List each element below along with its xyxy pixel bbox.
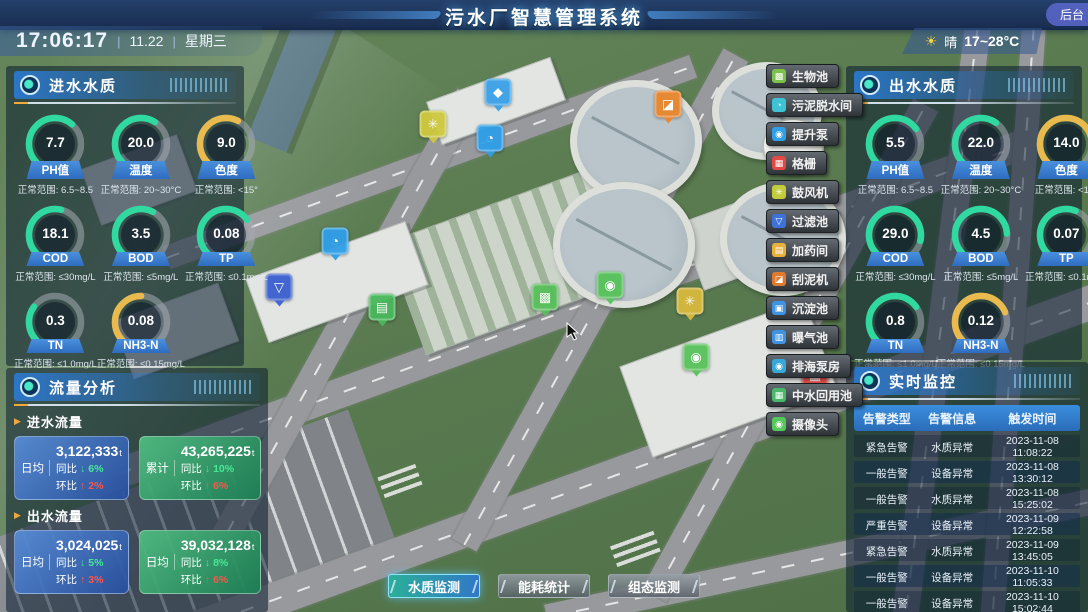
- gauge: 18.1 COD 正常范围: ≤30mg/L: [14, 202, 97, 283]
- header-dots-decor: [170, 78, 230, 92]
- realtime-monitor-panel: 实时监控 告警类型 告警信息 触发时间 紧急告警 水质异常 2023-11-08…: [846, 362, 1088, 612]
- alarm-row: 紧急告警 水质异常 2023-11-08 11:08:22: [854, 435, 1080, 457]
- facility-button[interactable]: ◪ 刮泥机: [766, 267, 839, 291]
- alarm-row: 紧急告警 水质异常 2023-11-09 13:45:05: [854, 539, 1080, 561]
- mud-scraper-marker[interactable]: ◪: [655, 91, 682, 118]
- bio-pool-icon: ▩: [772, 69, 786, 83]
- gauge-label: NH3-N: [952, 339, 1010, 353]
- gauge-value: 14.0: [1033, 135, 1088, 150]
- alarm-row: 一般告警 设备异常 2023-11-08 13:30:12: [854, 461, 1080, 483]
- gauge-normal-range: 正常范围: ≤30mg/L: [15, 269, 95, 283]
- gauge-value: 0.3: [22, 313, 88, 328]
- yoy-percent: 8%: [213, 557, 228, 569]
- alarm-type: 一般告警: [854, 596, 919, 611]
- gauge: 5.5 PH值 正常范围: 6.5~8.5: [854, 111, 937, 196]
- up-arrow-icon: ↑: [80, 574, 85, 586]
- alarm-table-header: 告警类型 告警信息 触发时间: [854, 405, 1080, 431]
- marker-pointer: [540, 311, 550, 317]
- sun-icon: ☀: [925, 33, 938, 50]
- camera-marker[interactable]: ◉: [683, 344, 710, 371]
- gauge-value: 0.08: [193, 226, 259, 241]
- inflow-section-title: ▶ 进水流量: [14, 412, 260, 431]
- sludge-dewatering-icon: ◔: [772, 98, 786, 112]
- flow-card: 日均 3,122,333t 同比↓6% 环比↑2%: [14, 436, 129, 500]
- facility-label: 曝气池: [792, 329, 828, 346]
- time-text: 17:06:17: [16, 29, 108, 53]
- clarifier-tank: [553, 182, 695, 308]
- filter-pool-marker[interactable]: ▽: [266, 274, 293, 301]
- alarm-time: 2023-11-10 11:05:33: [985, 565, 1080, 589]
- dashboard: ✳ ◔ ◆ ◪ ◔ ▽ ▤ ▩: [0, 0, 1088, 612]
- marker-glyph: ◔: [331, 234, 339, 249]
- bottom-tab-bar: 水质监测 能耗统计 组态监测: [388, 574, 700, 598]
- gauge-label: 色度: [197, 161, 255, 179]
- aeration-tank-icon: ▥: [772, 330, 786, 344]
- header-dots-decor: [1014, 374, 1074, 388]
- marker-pointer: [663, 118, 673, 124]
- gauge-label: TP: [197, 252, 255, 266]
- gauge-normal-range: 正常范围: ≤0.1mg/L: [1025, 269, 1088, 283]
- panel-header: 实时监控: [854, 367, 1080, 395]
- panel-header: 进水水质: [14, 71, 236, 99]
- lift-pump-marker[interactable]: ◆: [485, 79, 512, 106]
- alarm-time: 2023-11-09 12:22:58: [985, 513, 1080, 537]
- alarm-row: 严重告警 设备异常 2023-11-09 12:22:58: [854, 513, 1080, 535]
- gauge-label: 温度: [112, 161, 170, 179]
- facility-label: 刮泥机: [792, 271, 828, 288]
- blower-marker[interactable]: ✳: [420, 111, 447, 138]
- flow-unit: t: [252, 448, 255, 458]
- gauge-value: 4.5: [948, 226, 1014, 241]
- inflow-cards: 日均 3,122,333t 同比↓6% 环比↑2% 累计 43,265,225t…: [14, 436, 260, 500]
- facility-label: 格栅: [792, 155, 816, 172]
- gauge: 20.0 温度 正常范围: 20~30°C: [97, 111, 185, 196]
- flow-card: 日均 3,024,025t 同比↓5% 环比↑3%: [14, 530, 129, 594]
- gauge: 0.3 TN 正常范围: ≤1.0mg/L: [14, 289, 97, 370]
- alarm-info: 水质异常: [919, 492, 984, 507]
- reclaimed-water-marker[interactable]: ▤: [369, 294, 396, 321]
- alarm-time: 2023-11-10 15:02:44: [985, 591, 1080, 612]
- gauge-value: 9.0: [193, 135, 259, 150]
- marker-glyph: ▩: [539, 289, 551, 305]
- gauge-value: 0.8: [862, 313, 928, 328]
- alarm-type: 一般告警: [854, 570, 919, 585]
- inlet-quality-panel: 进水水质 7.7 PH值 正常范围: 6.5~8.5: [6, 66, 244, 366]
- panel-header-icon: [20, 75, 40, 95]
- gauge-normal-range: 正常范围: ≤30mg/L: [855, 269, 935, 283]
- bottom-tab[interactable]: 水质监测: [388, 574, 480, 598]
- header-underline: [14, 102, 236, 104]
- lift-pump-marker[interactable]: ◔: [322, 228, 349, 255]
- mud-scraper-icon: ◪: [772, 272, 786, 286]
- gauge-normal-range: 正常范围: <15°: [1035, 182, 1088, 196]
- alarm-table-body: 紧急告警 水质异常 2023-11-08 11:08:22 一般告警 设备异常 …: [854, 435, 1080, 612]
- alarm-time: 2023-11-08 11:08:22: [985, 435, 1080, 459]
- marker-glyph: ▽: [274, 279, 284, 295]
- marker-glyph: ✳: [685, 293, 696, 309]
- lift-pump-icon: ◉: [772, 127, 786, 141]
- alarm-type: 严重告警: [854, 518, 919, 533]
- outflow-cards: 日均 3,024,025t 同比↓5% 环比↑3% 日均 39,032,128t…: [14, 530, 260, 594]
- gauge-value: 0.12: [948, 313, 1014, 328]
- facility-button[interactable]: ◉ 提升泵: [766, 122, 839, 146]
- alarm-info: 设备异常: [919, 570, 984, 585]
- marker-glyph: ◉: [690, 349, 701, 365]
- alarm-info: 设备异常: [919, 466, 984, 481]
- flow-value: 3,024,025: [56, 537, 118, 553]
- bottom-tab[interactable]: 能耗统计: [498, 574, 590, 598]
- flow-card-tag: 累计: [146, 460, 175, 476]
- gauge: 7.7 PH值 正常范围: 6.5~8.5: [14, 111, 97, 196]
- gauge-value: 3.5: [108, 226, 174, 241]
- filter-pool-icon: ▽: [772, 214, 786, 228]
- header-underline: [14, 404, 260, 406]
- alarm-type: 一般告警: [854, 492, 919, 507]
- weather-condition: 晴: [944, 32, 957, 51]
- marker-glyph: ✳: [428, 116, 439, 132]
- gauge-value: 18.1: [22, 226, 88, 241]
- marker-pointer: [485, 152, 495, 158]
- gauge-label: 色度: [1037, 161, 1088, 179]
- facility-label: 中水回用池: [792, 387, 852, 404]
- flow-card-tag: 日均: [21, 554, 50, 570]
- bio-pool-marker[interactable]: ▩: [532, 284, 559, 311]
- down-arrow-icon: ↓: [205, 463, 210, 475]
- up-arrow-icon: ↑: [205, 574, 210, 586]
- blower-icon: ✳: [772, 185, 786, 199]
- alarm-time: 2023-11-08 15:25:02: [985, 487, 1080, 511]
- section-arrow-icon: ▶: [14, 510, 21, 521]
- marker-pointer: [377, 321, 387, 327]
- gauge-normal-range: 正常范围: 20~30°C: [101, 182, 182, 196]
- gauge: 0.12 NH3-N 正常范围: ≤0.15mg/L: [937, 289, 1025, 370]
- flow-card: 日均 39,032,128t 同比↓8% 环比↑6%: [139, 530, 262, 594]
- gauge: 0.08 TP 正常范围: ≤0.1mg/L: [185, 202, 268, 283]
- flow-card: 累计 43,265,225t 同比↓10% 环比↑6%: [139, 436, 262, 500]
- gauge: 9.0 色度 正常范围: <15°: [185, 111, 268, 196]
- facility-label: 沉淀池: [792, 300, 828, 317]
- alarm-row: 一般告警 设备异常 2023-11-10 15:02:44: [854, 591, 1080, 612]
- header-underline: [854, 102, 1074, 104]
- alarm-row: 一般告警 水质异常 2023-11-08 15:25:02: [854, 487, 1080, 509]
- facility-button[interactable]: ◉ 排海泵房: [766, 354, 851, 378]
- blower-marker[interactable]: ✳: [677, 288, 704, 315]
- gauge-label: TP: [1037, 252, 1088, 266]
- gauge: 0.8 TN 正常范围: ≤1.0mg/L: [854, 289, 937, 370]
- outlet-gauge-grid: 5.5 PH值 正常范围: 6.5~8.5 22.0 温度 正常范围: 2: [854, 109, 1074, 370]
- gauge: 0.07 TP 正常范围: ≤0.1mg/L: [1025, 202, 1088, 283]
- gauge-value: 20.0: [108, 135, 174, 150]
- gauge-normal-range: 正常范围: ≤5mg/L: [103, 269, 178, 283]
- gauge-value: 22.0: [948, 135, 1014, 150]
- flow-unit: t: [119, 448, 122, 458]
- facility-label: 污泥脱水间: [792, 97, 852, 114]
- gauge-normal-range: 正常范围: 6.5~8.5: [858, 182, 933, 196]
- down-arrow-icon: ↓: [80, 463, 85, 475]
- crosswalk: [377, 464, 422, 498]
- gauge-label: TN: [866, 339, 924, 353]
- flow-analysis-panel: 流量分析 ▶ 进水流量 日均 3,122,333t 同比↓6% 环比↑2% 累计: [6, 368, 268, 612]
- marker-pointer: [493, 106, 503, 112]
- yoy-percent: 10%: [213, 463, 234, 475]
- marker-glyph: ▤: [376, 299, 388, 315]
- gauge: 3.5 BOD 正常范围: ≤5mg/L: [97, 202, 185, 283]
- down-arrow-icon: ↓: [80, 557, 85, 569]
- alarm-info: 设备异常: [919, 596, 984, 611]
- crosswalk: [609, 529, 660, 567]
- header-underline: [854, 398, 1080, 400]
- temperature-range: 17~28°C: [964, 33, 1019, 49]
- gauge-label: BOD: [952, 252, 1010, 266]
- alarm-row: 一般告警 设备异常 2023-11-10 11:05:33: [854, 565, 1080, 587]
- clock-widget: 17:06:17 | 11.22 | 星期三: [0, 26, 262, 56]
- flow-value: 39,032,128: [181, 537, 251, 553]
- facility-label: 鼓风机: [792, 184, 828, 201]
- flow-unit: t: [252, 542, 255, 552]
- panel-title: 进水水质: [49, 75, 117, 96]
- bar-screen-icon: ▦: [772, 156, 786, 170]
- lift-pump-marker[interactable]: ◔: [477, 125, 504, 152]
- gauge-label: BOD: [112, 252, 170, 266]
- gauge-label: PH值: [866, 161, 924, 179]
- marker-pointer: [691, 371, 701, 377]
- flow-card-tag: 日均: [146, 554, 175, 570]
- section-arrow-icon: ▶: [14, 416, 21, 427]
- alarm-type: 一般告警: [854, 466, 919, 481]
- gauge-normal-range: 正常范围: ≤0.1mg/L: [185, 269, 268, 283]
- gauge-normal-range: 正常范围: ≤5mg/L: [943, 269, 1018, 283]
- dosing-room-icon: ▤: [772, 243, 786, 257]
- mom-percent: 6%: [213, 574, 228, 586]
- gauge: 14.0 色度 正常范围: <15°: [1025, 111, 1088, 196]
- marker-glyph: ◪: [662, 96, 674, 112]
- gauge-label: NH3-N: [112, 339, 170, 353]
- sea-pump-house-icon: ◉: [772, 359, 786, 373]
- gauge-value: 29.0: [862, 226, 928, 241]
- flow-value: 43,265,225: [181, 443, 251, 459]
- facility-button[interactable]: ◔ 污泥脱水间: [766, 93, 863, 117]
- inlet-gauge-grid: 7.7 PH值 正常范围: 6.5~8.5 20.0 温度 正常范围: 2: [14, 109, 236, 370]
- alarm-info: 水质异常: [919, 440, 984, 455]
- facility-button[interactable]: ✳ 鼓风机: [766, 180, 839, 204]
- weekday-text: 星期三: [185, 31, 227, 51]
- gauge-normal-range: 正常范围: 6.5~8.5: [18, 182, 93, 196]
- facility-button[interactable]: ▤ 加药间: [766, 238, 839, 262]
- facility-label: 提升泵: [792, 126, 828, 143]
- marker-glyph: ◆: [493, 84, 503, 100]
- gauge: 22.0 温度 正常范围: 20~30°C: [937, 111, 1025, 196]
- facility-label: 摄像头: [792, 416, 828, 433]
- marker-pointer: [428, 138, 438, 144]
- gauge-value: 5.5: [862, 135, 928, 150]
- alarm-type: 紧急告警: [854, 544, 919, 559]
- gauge-value: 7.7: [22, 135, 88, 150]
- facility-label: 加药间: [792, 242, 828, 259]
- yoy-percent: 5%: [88, 557, 103, 569]
- panel-title: 出水水质: [889, 75, 957, 96]
- alarm-info: 设备异常: [919, 518, 984, 533]
- facility-button[interactable]: ▩ 生物池: [766, 64, 839, 88]
- facility-label: 生物池: [792, 68, 828, 85]
- panel-header-icon: [20, 377, 40, 397]
- facility-label: 过滤池: [792, 213, 828, 230]
- marker-pointer: [330, 255, 340, 261]
- gauge-value: 0.07: [1033, 226, 1088, 241]
- header-dots-decor: [194, 380, 254, 394]
- gauge-label: COD: [26, 252, 84, 266]
- up-arrow-icon: ↑: [205, 480, 210, 492]
- outflow-section-title: ▶ 出水流量: [14, 506, 260, 525]
- header-dots-decor: [1008, 78, 1068, 92]
- flow-unit: t: [119, 542, 122, 552]
- alarm-time: 2023-11-08 13:30:12: [985, 461, 1080, 485]
- facility-button-list: ▩ 生物池 ◔ 污泥脱水间 ◉ 提升泵 ▦ 格栅 ✳ 鼓风机 ▽ 过滤池 ▤ 加…: [766, 64, 863, 436]
- gauge-value: 0.08: [108, 313, 174, 328]
- outlet-quality-panel: 出水水质 5.5 PH值 正常范围: 6.5~8.5: [846, 66, 1082, 360]
- gauge-label: COD: [866, 252, 924, 266]
- marker-glyph: ◔: [486, 131, 494, 146]
- gauge-label: 温度: [952, 161, 1010, 179]
- gauge-normal-range: 正常范围: 20~30°C: [941, 182, 1022, 196]
- marker-pointer: [605, 299, 615, 305]
- alarm-type: 紧急告警: [854, 440, 919, 455]
- camera-icon: ◉: [772, 417, 786, 431]
- mouse-cursor: [566, 322, 582, 342]
- facility-button[interactable]: ▦ 中水回用池: [766, 383, 863, 407]
- marker-glyph: ◉: [604, 277, 615, 293]
- alarm-time: 2023-11-09 13:45:05: [985, 539, 1080, 563]
- panel-title: 流量分析: [49, 377, 117, 398]
- bottom-tab[interactable]: 组态监测: [608, 574, 700, 598]
- gauge-normal-range: 正常范围: <15°: [195, 182, 258, 196]
- gauge: 4.5 BOD 正常范围: ≤5mg/L: [937, 202, 1025, 283]
- panel-title: 实时监控: [889, 371, 957, 392]
- sedimentation-tank-icon: ▣: [772, 301, 786, 315]
- alarm-info: 水质异常: [919, 544, 984, 559]
- mom-percent: 3%: [88, 574, 103, 586]
- down-arrow-icon: ↓: [205, 557, 210, 569]
- mom-percent: 2%: [88, 480, 103, 492]
- panel-header: 流量分析: [14, 373, 260, 401]
- backend-button[interactable]: 后台: [1046, 3, 1088, 26]
- flow-value: 3,122,333: [56, 443, 118, 459]
- facility-button[interactable]: ▣ 沉淀池: [766, 296, 839, 320]
- facility-button[interactable]: ◉ 摄像头: [766, 412, 839, 436]
- date-text: 11.22: [129, 33, 163, 49]
- yoy-percent: 6%: [88, 463, 103, 475]
- gauge: 0.08 NH3-N 正常范围: ≤0.15mg/L: [97, 289, 185, 370]
- gauge-label: TN: [26, 339, 84, 353]
- panel-header: 出水水质: [854, 71, 1074, 99]
- gauge: 29.0 COD 正常范围: ≤30mg/L: [854, 202, 937, 283]
- facility-button[interactable]: ▽ 过滤池: [766, 209, 839, 233]
- facility-button[interactable]: ▦ 格栅: [766, 151, 827, 175]
- marker-pointer: [685, 315, 695, 321]
- facility-label: 排海泵房: [792, 358, 840, 375]
- up-arrow-icon: ↑: [80, 480, 85, 492]
- camera-marker[interactable]: ◉: [597, 272, 624, 299]
- facility-button[interactable]: ▥ 曝气池: [766, 325, 839, 349]
- mom-percent: 6%: [213, 480, 228, 492]
- gauge-label: PH值: [26, 161, 84, 179]
- marker-pointer: [274, 301, 284, 307]
- weather-widget: ☀ 晴 17~28°C: [902, 28, 1042, 54]
- flow-card-tag: 日均: [21, 460, 50, 476]
- reclaimed-water-icon: ▦: [772, 388, 786, 402]
